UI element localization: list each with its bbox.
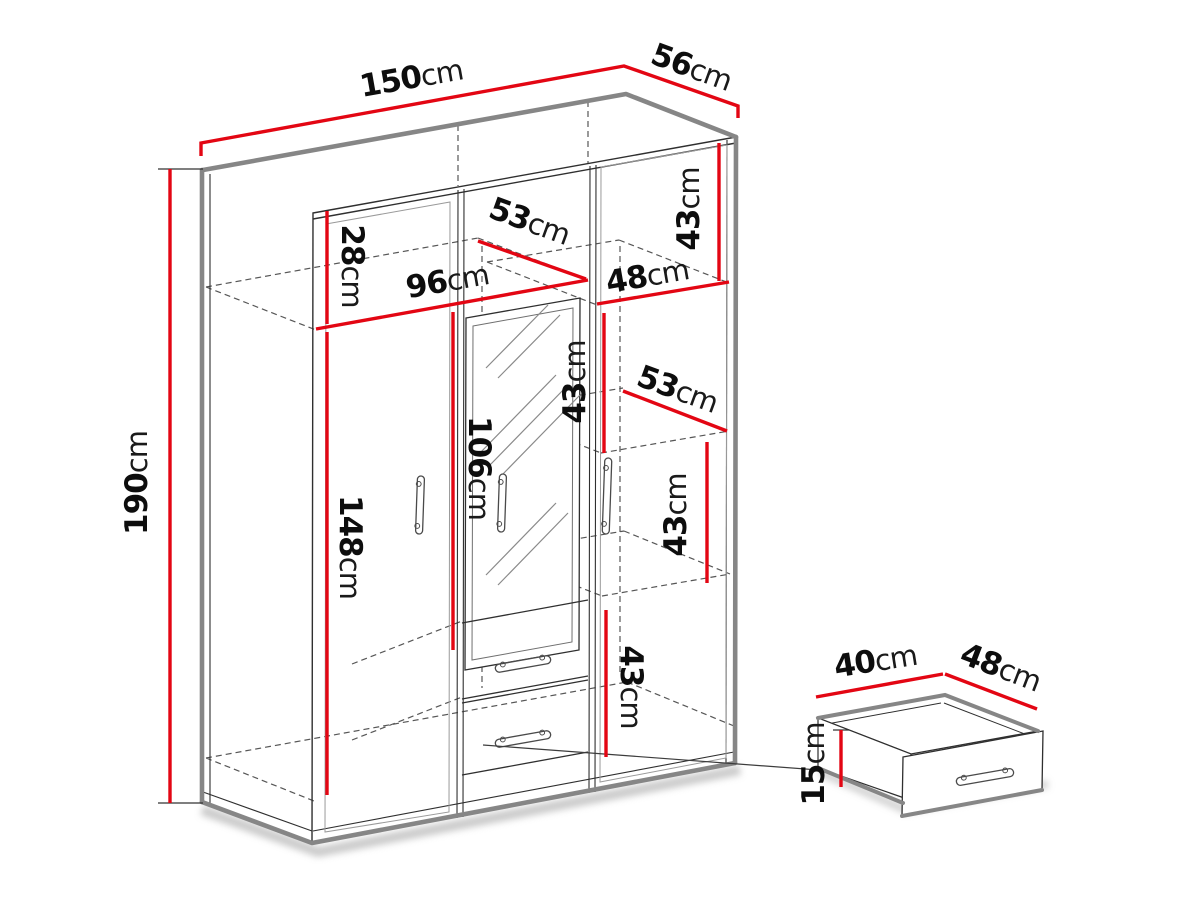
dim-label-drawer-40: 40cm <box>831 637 919 686</box>
middle-door-handle <box>497 474 507 532</box>
dim-unit: cm <box>797 722 831 764</box>
dim-value: 43 <box>658 516 694 557</box>
dim-value: 190 <box>119 473 155 535</box>
dim-value: 15 <box>796 765 832 806</box>
dim-unit: cm <box>558 340 592 382</box>
diagram-page: 150cm 56cm 190cm 28cm 53cm 96cm 48cm 43c… <box>0 0 1200 900</box>
dim-unit: cm <box>335 265 369 307</box>
dim-label-43-bottom: 43cm <box>613 645 649 728</box>
dim-value: 96 <box>403 264 450 307</box>
dim-value: 106 <box>461 416 497 478</box>
dim-label-28: 28cm <box>334 224 370 307</box>
dim-unit: cm <box>444 257 491 298</box>
dim-value: 148 <box>332 495 368 557</box>
dim-value: 28 <box>334 224 370 265</box>
left-door-handle <box>415 476 425 534</box>
dim-label-43-divider: 43cm <box>557 340 593 423</box>
dim-value: 43 <box>613 645 649 686</box>
dim-unit: cm <box>462 478 496 520</box>
wardrobe-dimension-diagram: 150cm 56cm 190cm 28cm 53cm 96cm 48cm 43c… <box>0 0 1200 900</box>
dim-value: 150 <box>357 59 424 105</box>
dim-value: 43 <box>557 383 593 424</box>
dim-label-drawer-48: 48cm <box>955 636 1046 699</box>
dim-unit: cm <box>614 686 648 728</box>
dim-label-height-190: 190cm <box>119 431 155 535</box>
dim-unit: cm <box>333 557 367 599</box>
dim-unit: cm <box>872 638 919 678</box>
dim-unit: cm <box>120 431 154 473</box>
detached-drawer <box>818 695 1043 816</box>
dim-unit: cm <box>672 167 706 209</box>
dim-value: 40 <box>831 643 878 685</box>
front-right-vertical-edge <box>735 137 736 763</box>
dim-label-drawer-15: 15cm <box>796 722 832 805</box>
dim-value: 43 <box>671 210 707 251</box>
dim-unit: cm <box>644 252 691 293</box>
dim-label-106: 106cm <box>461 416 497 520</box>
dim-value: 48 <box>603 259 650 302</box>
dim-label-43-mid-right: 43cm <box>658 473 694 556</box>
dim-unit: cm <box>418 52 465 93</box>
dim-label-43-top-right: 43cm <box>671 167 707 250</box>
dim-label-148: 148cm <box>332 495 368 599</box>
dim-unit: cm <box>659 473 693 515</box>
